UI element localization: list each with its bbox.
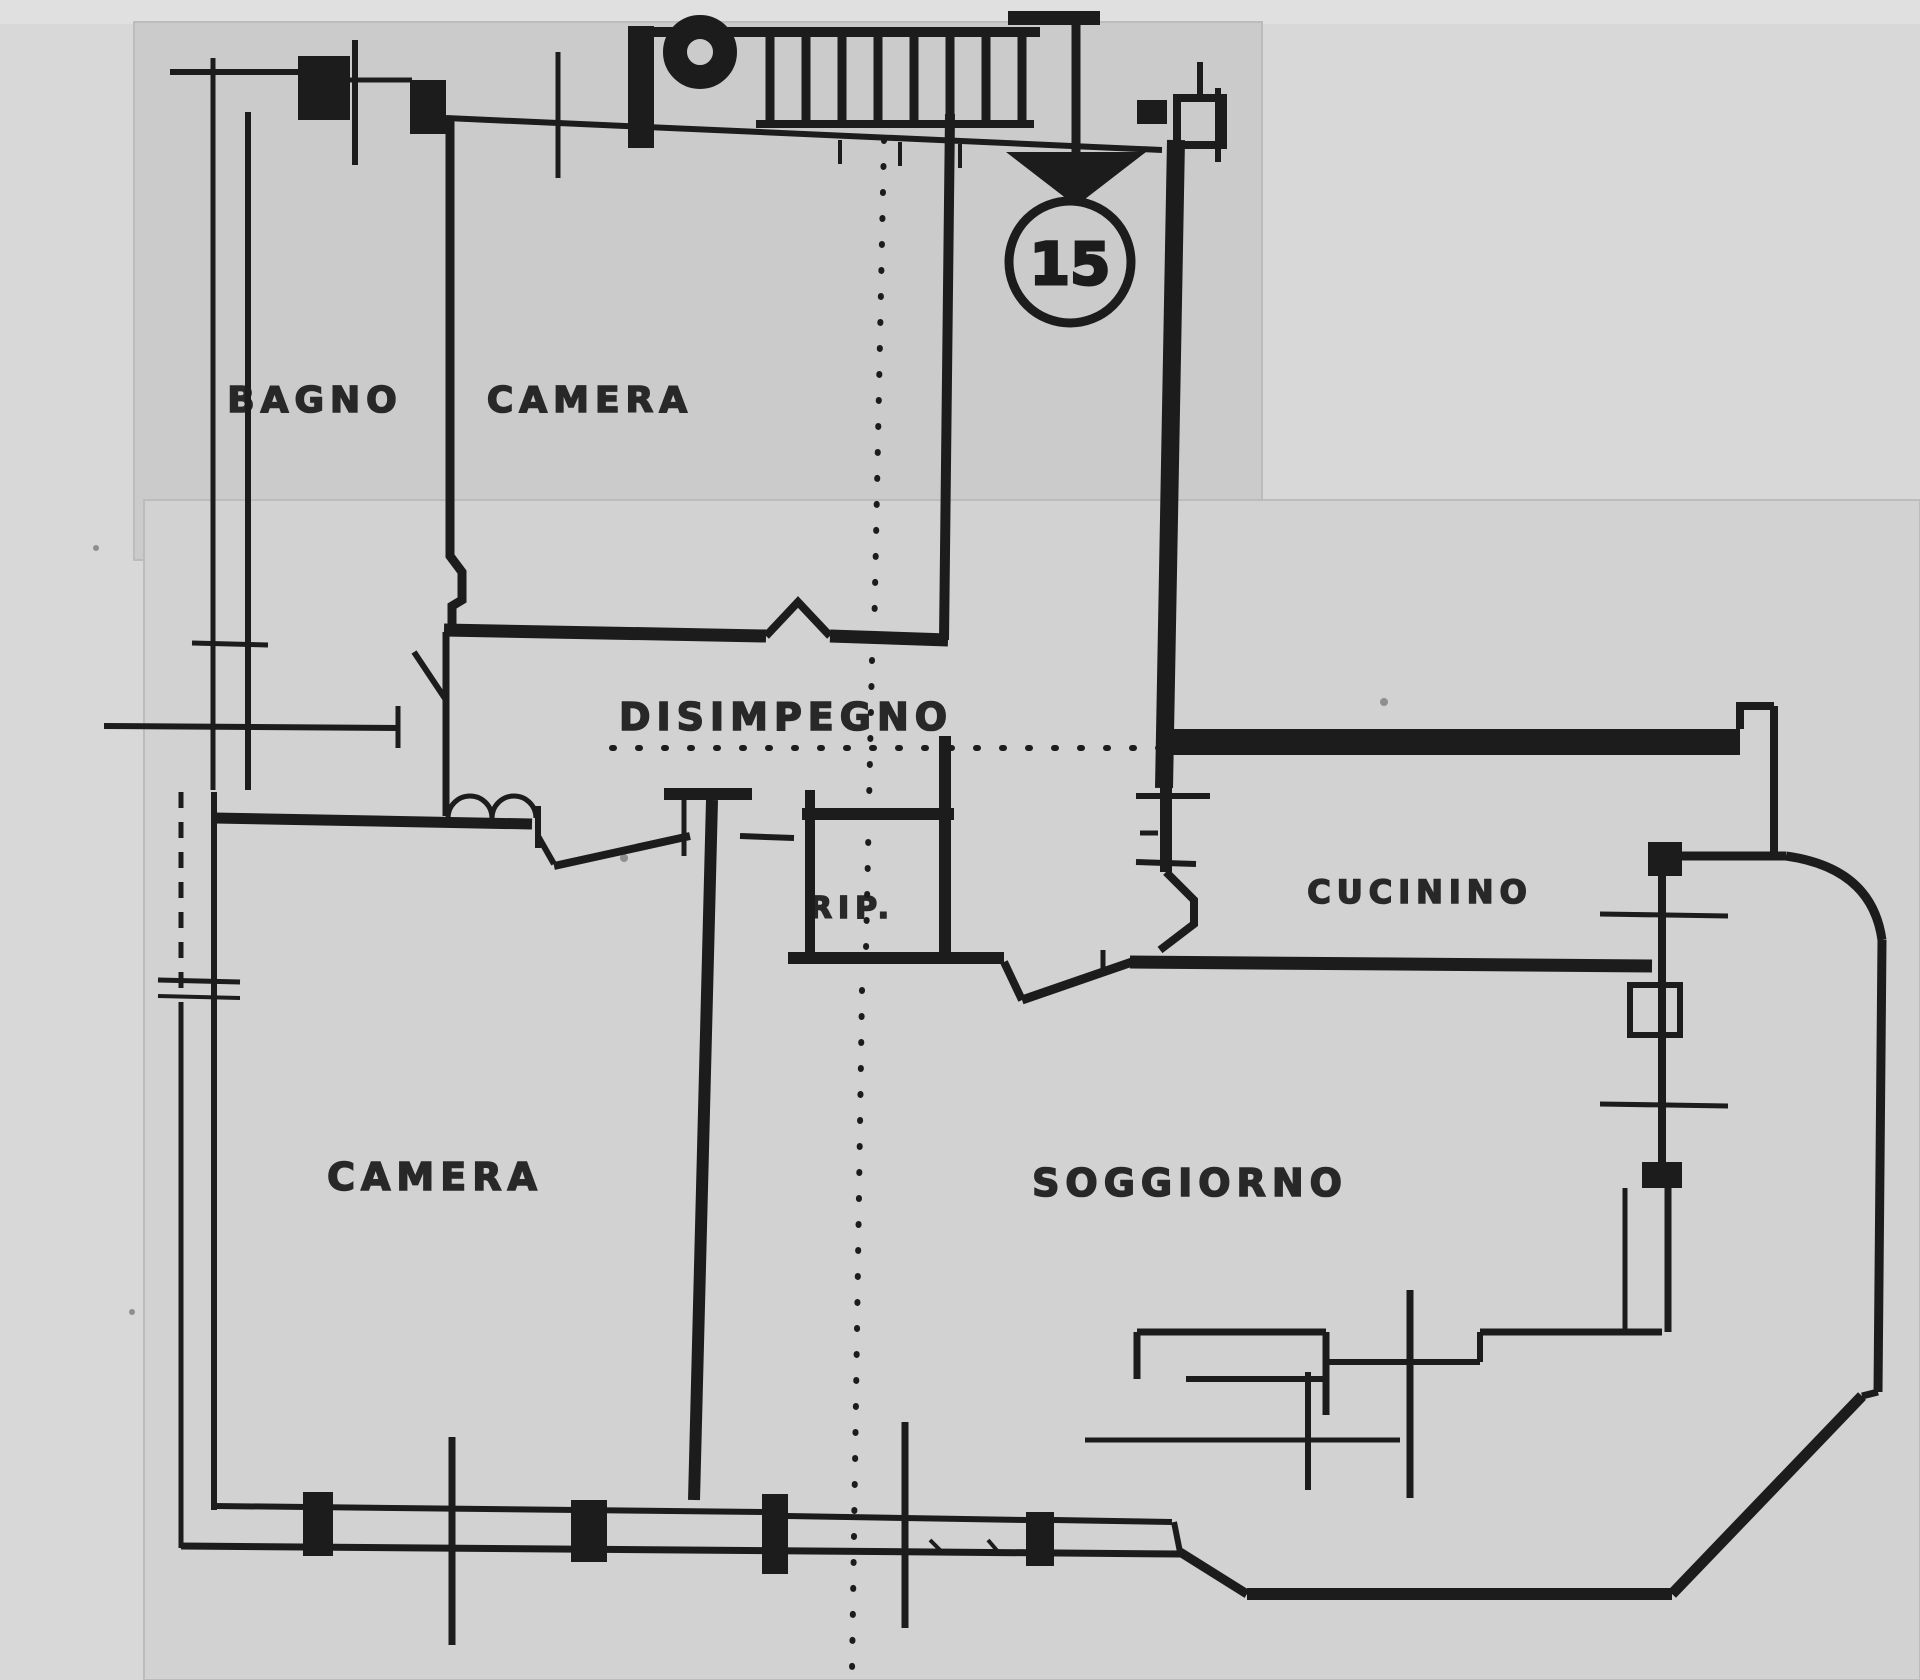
room-label-soggiorno: SOGGIORNO <box>1032 1161 1348 1205</box>
measure-tick <box>158 996 240 998</box>
wall-segment <box>1130 962 1652 966</box>
wall-pier <box>298 56 350 120</box>
room-label-camera-top: CAMERA <box>487 380 693 421</box>
scanned-floor-plan: 15 <box>0 0 1920 1680</box>
corridor-wall <box>944 114 950 640</box>
wall-pier <box>1648 842 1682 876</box>
room-label-disimpegno: DISIMPEGNO <box>619 695 953 739</box>
room-label-cucinino: CUCININO <box>1307 873 1533 911</box>
scan-top-strip <box>0 0 1920 24</box>
window-tick <box>1136 862 1196 864</box>
wall-segment <box>740 836 794 838</box>
wall-segment <box>214 818 532 824</box>
wall-pier <box>410 80 446 134</box>
floor-plan-svg: 15 <box>0 0 1920 1680</box>
wall-step <box>1862 1392 1878 1396</box>
outer-wall-right-lower <box>1878 940 1882 1392</box>
wall-segment <box>444 630 766 636</box>
wall-pier <box>628 26 654 148</box>
wall-pier <box>1137 100 1167 124</box>
wall-segment <box>104 726 400 728</box>
window-tick <box>1600 914 1728 916</box>
window-tick <box>1600 1104 1728 1106</box>
outer-wall-right-upper <box>1164 140 1176 788</box>
measure-tick <box>158 980 240 982</box>
room-label-rip: RIP. <box>809 891 895 926</box>
wall-pier <box>1642 1162 1682 1188</box>
wall-segment <box>830 636 948 640</box>
paper-background <box>0 0 1920 1680</box>
lower-sheet <box>144 500 1920 1680</box>
measure-tick <box>192 643 268 645</box>
unit-number-text: 15 <box>1030 230 1111 298</box>
room-label-bagno: BAGNO <box>227 380 403 421</box>
room-label-camera-bottom: CAMERA <box>327 1155 543 1199</box>
